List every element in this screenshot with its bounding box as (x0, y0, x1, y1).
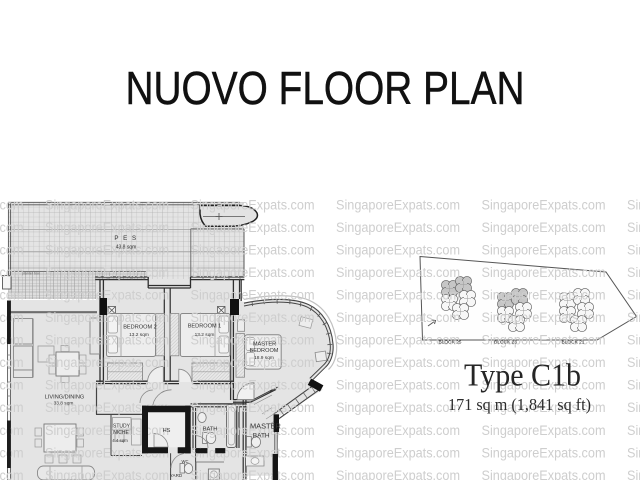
svg-text:SingaporeExpats.com: SingaporeExpats.com (45, 220, 169, 235)
svg-text:SingaporeExpats.com: SingaporeExpats.com (336, 445, 460, 460)
svg-text:SingaporeExpats.com: SingaporeExpats.com (336, 378, 460, 393)
svg-text:STUDY: STUDY (113, 424, 131, 430)
svg-text:SingaporeExpats.com: SingaporeExpats.com (45, 265, 169, 280)
svg-text:33.8 sqm: 33.8 sqm (54, 401, 74, 407)
svg-text:SingaporeExpats.com: SingaporeExpats.com (627, 333, 640, 348)
svg-text:WC: WC (182, 459, 189, 464)
svg-text:SingaporeExpats.com: SingaporeExpats.com (45, 468, 169, 480)
svg-text:SingaporeExpats.com: SingaporeExpats.com (191, 288, 315, 303)
svg-text:BLOCK 23: BLOCK 23 (494, 340, 517, 346)
svg-text:Type C1b: Type C1b (464, 356, 581, 392)
svg-text:SingaporeExpats.com: SingaporeExpats.com (191, 445, 315, 460)
svg-text:SingaporeExpats.com: SingaporeExpats.com (482, 197, 606, 212)
svg-text:MASTER: MASTER (253, 342, 276, 348)
svg-text:171 sq m (1,841 sq ft): 171 sq m (1,841 sq ft) (448, 395, 591, 414)
svg-text:SingaporeExpats.com: SingaporeExpats.com (336, 355, 460, 370)
svg-text:NUOVO FLOOR PLAN: NUOVO FLOOR PLAN (126, 62, 525, 114)
svg-text:SingaporeExpats.com: SingaporeExpats.com (191, 468, 315, 480)
svg-text:SingaporeExpats.com: SingaporeExpats.com (627, 288, 640, 303)
svg-text:4.4 sqm: 4.4 sqm (112, 438, 128, 443)
svg-text:SingaporeExpats.com: SingaporeExpats.com (627, 310, 640, 325)
svg-text:SingaporeExpats.com: SingaporeExpats.com (0, 265, 24, 280)
svg-text:SingaporeExpats.com: SingaporeExpats.com (45, 423, 169, 438)
svg-text:SingaporeExpats.com: SingaporeExpats.com (336, 468, 460, 480)
svg-text:SingaporeExpats.com: SingaporeExpats.com (336, 197, 460, 212)
svg-text:SingaporeExpats.com: SingaporeExpats.com (191, 265, 315, 280)
svg-text:SingaporeExpats.com: SingaporeExpats.com (336, 288, 460, 303)
svg-text:SingaporeExpats.com: SingaporeExpats.com (627, 355, 640, 370)
svg-text:P E S: P E S (114, 235, 137, 242)
svg-text:SingaporeExpats.com: SingaporeExpats.com (336, 423, 460, 438)
svg-text:SingaporeExpats.com: SingaporeExpats.com (336, 310, 460, 325)
svg-text:BLOCK 25: BLOCK 25 (439, 340, 462, 346)
svg-text:SingaporeExpats.com: SingaporeExpats.com (627, 378, 640, 393)
svg-text:SingaporeExpats.com: SingaporeExpats.com (627, 423, 640, 438)
svg-text:SingaporeExpats.com: SingaporeExpats.com (0, 400, 24, 415)
svg-text:SingaporeExpats.com: SingaporeExpats.com (482, 423, 606, 438)
svg-text:MASTER: MASTER (250, 422, 281, 431)
svg-text:SingaporeExpats.com: SingaporeExpats.com (0, 355, 24, 370)
svg-text:SingaporeExpats.com: SingaporeExpats.com (336, 400, 460, 415)
svg-text:SingaporeExpats.com: SingaporeExpats.com (0, 378, 24, 393)
svg-text:SingaporeExpats.com: SingaporeExpats.com (0, 468, 24, 480)
svg-text:SingaporeExpats.com: SingaporeExpats.com (482, 242, 606, 257)
svg-text:SingaporeExpats.com: SingaporeExpats.com (482, 288, 606, 303)
svg-text:planter box: planter box (22, 272, 40, 276)
svg-text:SingaporeExpats.com: SingaporeExpats.com (482, 310, 606, 325)
svg-text:SingaporeExpats.com: SingaporeExpats.com (45, 333, 169, 348)
svg-text:SingaporeExpats.com: SingaporeExpats.com (336, 265, 460, 280)
svg-text:BEDROOM 2: BEDROOM 2 (123, 325, 157, 331)
svg-text:13.2 sqm: 13.2 sqm (195, 332, 215, 338)
svg-text:SingaporeExpats.com: SingaporeExpats.com (191, 220, 315, 235)
svg-text:LIVING/DINING: LIVING/DINING (45, 395, 84, 401)
svg-text:SingaporeExpats.com: SingaporeExpats.com (627, 220, 640, 235)
svg-text:SingaporeExpats.com: SingaporeExpats.com (191, 378, 315, 393)
svg-text:SingaporeExpats.com: SingaporeExpats.com (627, 400, 640, 415)
svg-text:SingaporeExpats.com: SingaporeExpats.com (0, 333, 24, 348)
svg-text:NICHE: NICHE (113, 430, 129, 436)
svg-text:SingaporeExpats.com: SingaporeExpats.com (0, 288, 24, 303)
svg-text:SingaporeExpats.com: SingaporeExpats.com (482, 445, 606, 460)
svg-text:SingaporeExpats.com: SingaporeExpats.com (627, 197, 640, 212)
svg-text:18.9 sqm: 18.9 sqm (254, 355, 274, 361)
svg-text:SingaporeExpats.com: SingaporeExpats.com (45, 378, 169, 393)
svg-text:SingaporeExpats.com: SingaporeExpats.com (482, 468, 606, 480)
svg-text:SingaporeExpats.com: SingaporeExpats.com (482, 265, 606, 280)
svg-text:SingaporeExpats.com: SingaporeExpats.com (45, 197, 169, 212)
svg-text:SingaporeExpats.com: SingaporeExpats.com (0, 220, 24, 235)
svg-text:YARD: YARD (170, 473, 183, 478)
svg-text:SingaporeExpats.com: SingaporeExpats.com (45, 242, 169, 257)
svg-text:HS: HS (163, 428, 171, 434)
svg-text:SingaporeExpats.com: SingaporeExpats.com (482, 220, 606, 235)
svg-text:BLOCK 21: BLOCK 21 (562, 340, 585, 346)
svg-text:SingaporeExpats.com: SingaporeExpats.com (191, 400, 315, 415)
svg-text:43.8 sqm: 43.8 sqm (116, 245, 137, 251)
svg-text:SingaporeExpats.com: SingaporeExpats.com (0, 310, 24, 325)
svg-text:SingaporeExpats.com: SingaporeExpats.com (627, 265, 640, 280)
svg-text:SingaporeExpats.com: SingaporeExpats.com (0, 197, 24, 212)
svg-text:SingaporeExpats.com: SingaporeExpats.com (191, 242, 315, 257)
svg-text:SingaporeExpats.com: SingaporeExpats.com (191, 355, 315, 370)
svg-text:SingaporeExpats.com: SingaporeExpats.com (336, 220, 460, 235)
svg-text:SingaporeExpats.com: SingaporeExpats.com (0, 242, 24, 257)
svg-text:SingaporeExpats.com: SingaporeExpats.com (45, 355, 169, 370)
svg-text:SingaporeExpats.com: SingaporeExpats.com (0, 423, 24, 438)
svg-text:13.2 sqm: 13.2 sqm (129, 332, 149, 338)
svg-text:BEDROOM: BEDROOM (250, 348, 279, 354)
svg-text:SingaporeExpats.com: SingaporeExpats.com (627, 445, 640, 460)
svg-text:SingaporeExpats.com: SingaporeExpats.com (336, 242, 460, 257)
svg-text:BATH: BATH (203, 427, 218, 433)
svg-text:BATH: BATH (253, 433, 270, 440)
svg-text:SingaporeExpats.com: SingaporeExpats.com (627, 242, 640, 257)
svg-text:SingaporeExpats.com: SingaporeExpats.com (0, 445, 24, 460)
svg-text:SingaporeExpats.com: SingaporeExpats.com (627, 468, 640, 480)
svg-text:BEDROOM 1: BEDROOM 1 (188, 324, 222, 330)
svg-text:SingaporeExpats.com: SingaporeExpats.com (191, 197, 315, 212)
